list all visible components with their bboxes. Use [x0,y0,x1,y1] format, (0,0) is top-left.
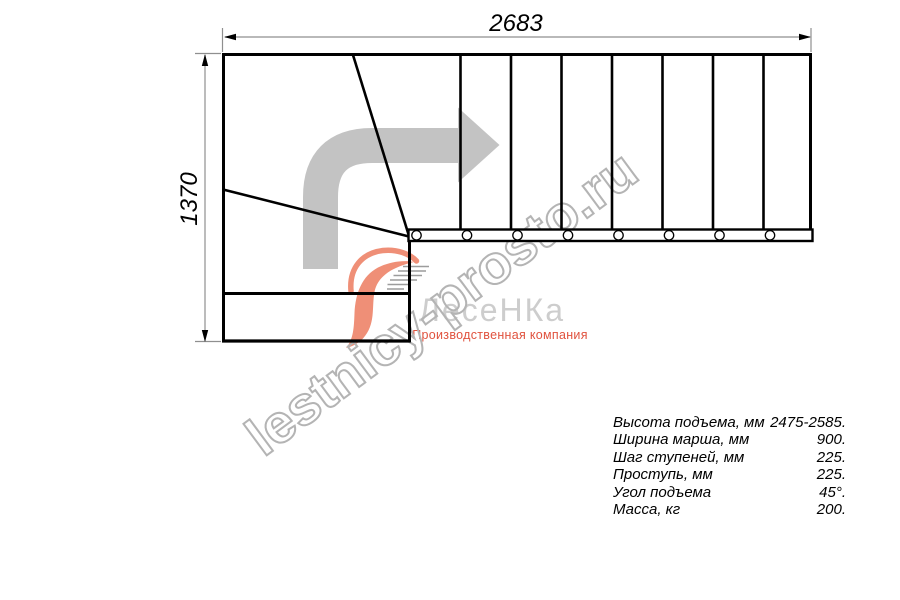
spec-value: 45°. [819,484,846,501]
spec-label: Масса, кг [613,501,680,518]
spec-row-step: Шаг ступеней, мм 225. [613,449,846,466]
winder-tread-lines [223,55,409,237]
spec-row-tread: Проступь, мм 225. [613,466,846,483]
dimension-width: 2683 [223,10,812,52]
spec-row-height: Высота подъема, мм 2475-2585. [613,414,846,431]
spec-row-march-width: Ширина марша, мм 900. [613,431,846,448]
dimension-height: 1370 [176,54,221,343]
spec-label: Шаг ступеней, мм [613,449,744,466]
spec-value: 225. [817,466,846,483]
spec-value: 225. [817,449,846,466]
tread-divider-lines [461,55,764,230]
spec-table: Высота подъема, мм 2475-2585. Ширина мар… [613,414,846,518]
spec-row-mass: Масса, кг 200. [613,501,846,518]
stair-plan-outline [222,53,811,343]
staircase-drawing-page: ЛесеНКа Производственная компания lestni… [0,0,900,600]
dimension-width-label: 2683 [488,10,543,37]
spec-label: Проступь, мм [613,466,713,483]
spec-value: 900. [817,431,846,448]
spec-value: 2475-2585. [770,414,846,431]
spec-label: Угол подъема [613,484,711,501]
spec-value: 200. [817,501,846,518]
stringer-strip [409,230,813,242]
spec-row-angle: Угол подъема 45°. [613,484,846,501]
spec-label: Высота подъема, мм [613,414,765,431]
dimension-height-label: 1370 [176,172,203,226]
spec-label: Ширина марша, мм [613,431,749,448]
